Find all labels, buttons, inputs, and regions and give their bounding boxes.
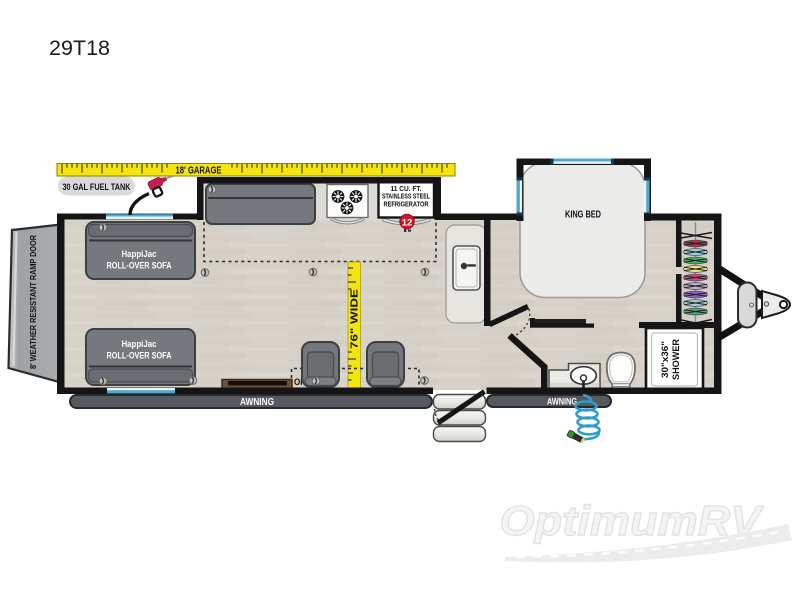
svg-text:12: 12	[402, 217, 413, 228]
svg-text:REFRIGERATOR: REFRIGERATOR	[384, 199, 430, 208]
svg-text:29T18: 29T18	[49, 36, 110, 60]
svg-text:76" WIDE: 76" WIDE	[349, 289, 361, 349]
svg-text:18' GARAGE: 18' GARAGE	[176, 166, 222, 177]
svg-text:HappiJac: HappiJac	[122, 249, 157, 259]
svg-text:AWNING: AWNING	[240, 397, 274, 408]
svg-text:AWNING: AWNING	[547, 396, 577, 406]
svg-text:ROLL-OVER SOFA: ROLL-OVER SOFA	[107, 351, 173, 361]
svg-text:KING BED: KING BED	[565, 210, 601, 221]
svg-text:30 GAL FUEL TANK: 30 GAL FUEL TANK	[63, 182, 131, 192]
svg-text:ROLL-OVER SOFA: ROLL-OVER SOFA	[107, 261, 173, 271]
svg-text:HappiJac: HappiJac	[122, 339, 157, 349]
svg-text:8' WEATHER RESISTANT RAMP DOOR: 8' WEATHER RESISTANT RAMP DOOR	[28, 234, 38, 369]
svg-text:SHOWER: SHOWER	[671, 338, 681, 380]
svg-text:30"x36": 30"x36"	[660, 341, 670, 378]
